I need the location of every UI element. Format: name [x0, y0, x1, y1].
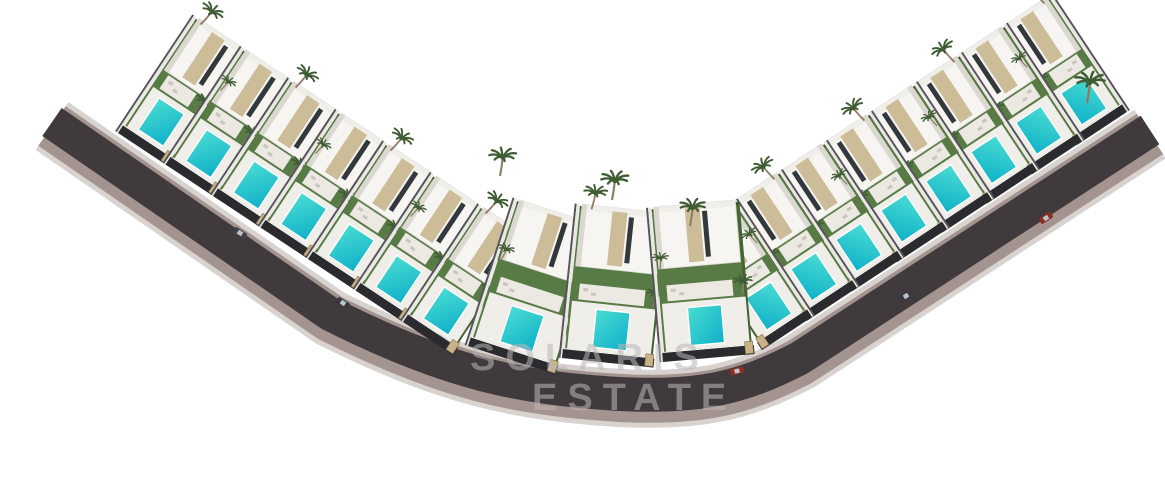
pool [592, 309, 630, 350]
development-scene [0, 0, 1165, 482]
aerial-render: SOLARIS ESTATE [0, 0, 1165, 482]
palm-tree [489, 148, 516, 177]
pool [687, 305, 724, 346]
